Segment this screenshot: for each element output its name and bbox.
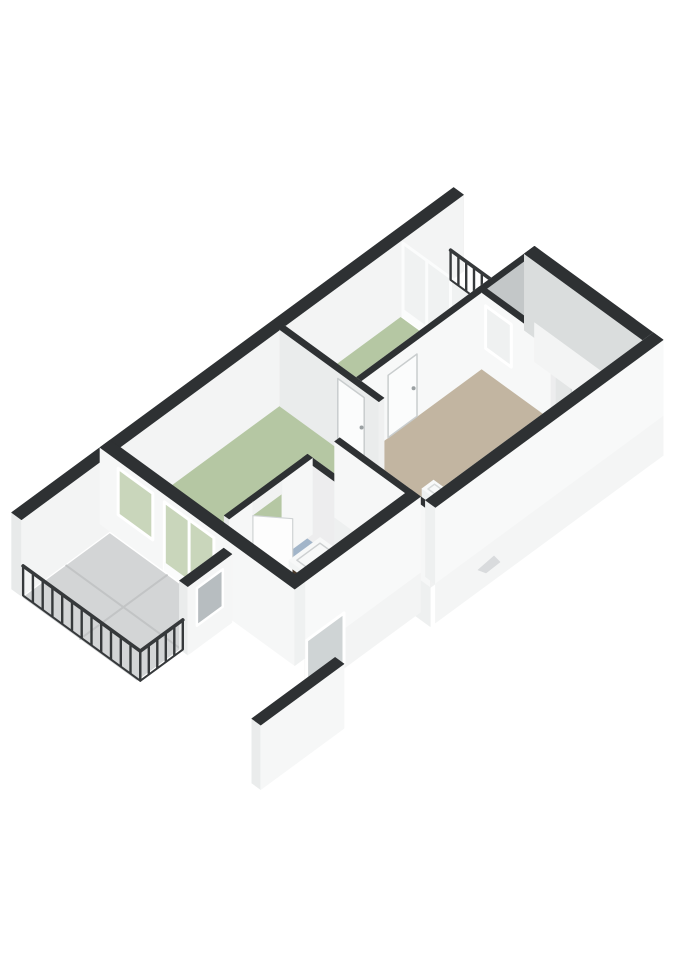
door-handle-living (360, 426, 364, 430)
door-handle-middle (412, 386, 416, 390)
floorplan-3d-view (0, 0, 679, 960)
floorplan-svg (0, 0, 679, 960)
lower-level-stub-wall (252, 657, 344, 789)
